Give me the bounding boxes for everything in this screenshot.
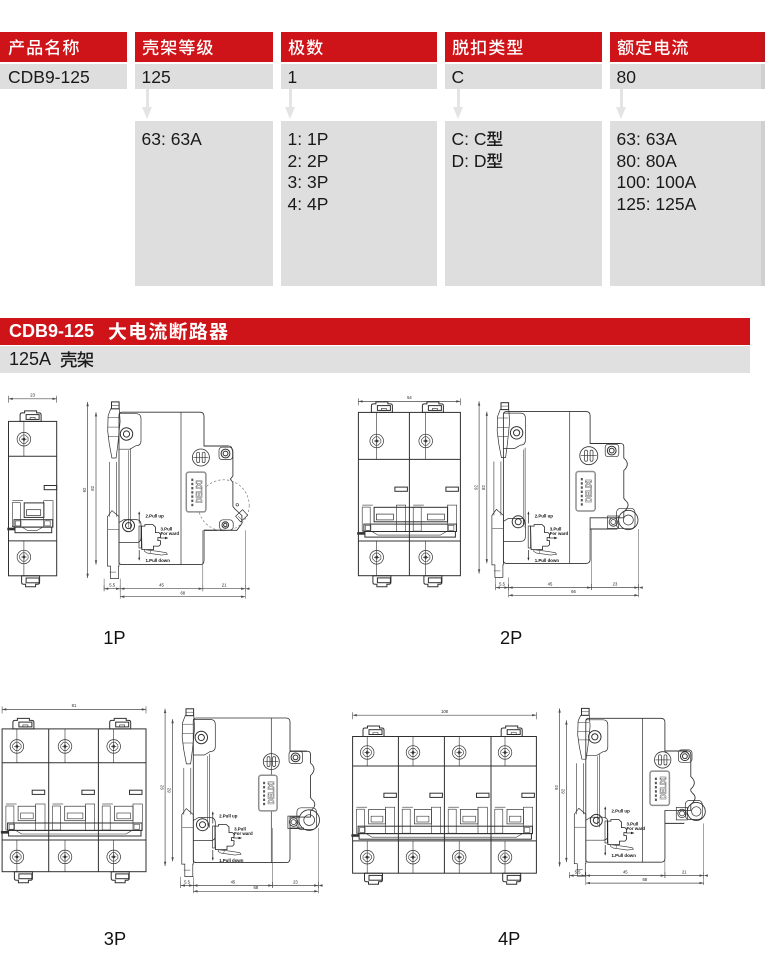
svg-text:81: 81: [72, 703, 77, 708]
svg-text:82: 82: [481, 485, 486, 490]
svg-text:5.5: 5.5: [499, 581, 505, 586]
svg-text:92: 92: [554, 785, 559, 790]
svg-text:1.Pull down: 1.Pull down: [146, 558, 171, 563]
svg-text:23: 23: [293, 879, 298, 884]
svg-text:DELIXI: DELIXI: [267, 782, 276, 805]
svg-text:5.5: 5.5: [109, 583, 115, 588]
svg-text:54: 54: [407, 395, 412, 400]
svg-text:2.Pull up: 2.Pull up: [146, 513, 165, 518]
svg-text:2.Pull up: 2.Pull up: [535, 513, 554, 518]
svg-text:45: 45: [623, 869, 628, 874]
svg-text:1.Pull down: 1.Pull down: [535, 558, 560, 563]
svg-text:23: 23: [30, 393, 35, 398]
svg-text:68: 68: [180, 591, 185, 596]
svg-text:108: 108: [441, 709, 449, 714]
svg-text:45: 45: [548, 581, 553, 586]
svg-text:23: 23: [613, 581, 618, 586]
svg-text:For ward: For ward: [234, 831, 253, 836]
svg-text:92: 92: [473, 485, 478, 490]
svg-text:5.5: 5.5: [184, 879, 190, 884]
svg-text:66: 66: [571, 589, 576, 594]
svg-text:45: 45: [231, 879, 236, 884]
svg-text:1.Pull down: 1.Pull down: [219, 858, 244, 863]
svg-text:82: 82: [90, 485, 95, 490]
svg-text:82: 82: [561, 788, 566, 793]
svg-text:1.Pull down: 1.Pull down: [612, 853, 637, 858]
svg-text:For ward: For ward: [550, 531, 569, 536]
svg-text:92: 92: [82, 487, 87, 492]
svg-text:2.Pull up: 2.Pull up: [219, 813, 238, 818]
svg-text:For ward: For ward: [627, 826, 646, 831]
svg-text:DELIXI: DELIXI: [585, 480, 594, 503]
svg-text:2.Pull up: 2.Pull up: [612, 808, 631, 813]
svg-text:For ward: For ward: [161, 531, 180, 536]
svg-text:DELIXI: DELIXI: [195, 480, 204, 503]
svg-text:21: 21: [682, 869, 687, 874]
svg-text:92: 92: [159, 784, 164, 789]
svg-text:45: 45: [159, 583, 164, 588]
svg-text:68: 68: [253, 885, 258, 890]
svg-text:82: 82: [167, 787, 172, 792]
svg-text:5.5: 5.5: [575, 869, 581, 874]
svg-text:DELIXI: DELIXI: [659, 777, 668, 800]
svg-text:68: 68: [642, 877, 647, 882]
svg-text:21: 21: [222, 583, 227, 588]
